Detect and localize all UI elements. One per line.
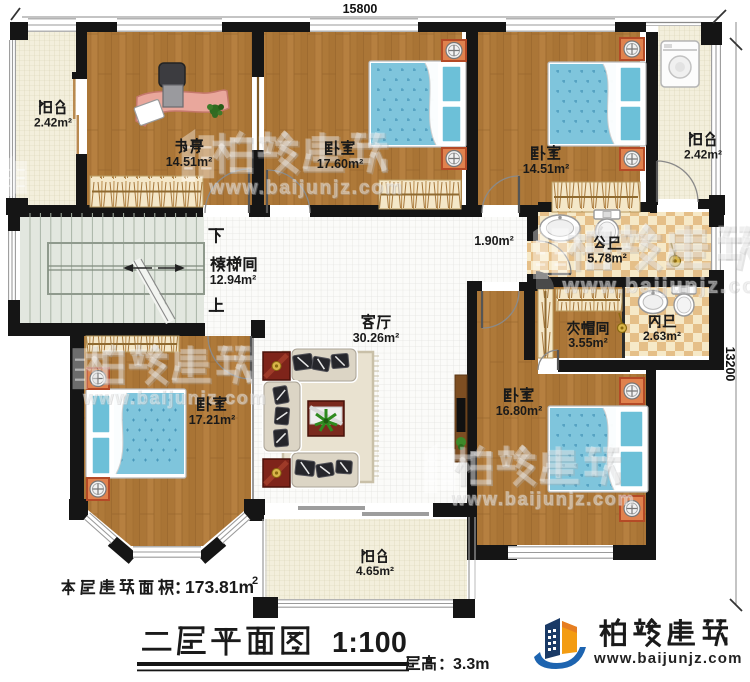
svg-text:2: 2 — [252, 575, 258, 587]
svg-text:2.42m²: 2.42m² — [684, 147, 722, 161]
svg-text:www.baijunjz.com: www.baijunjz.com — [450, 489, 635, 509]
svg-text:www.baijunjz.com: www.baijunjz.com — [82, 388, 267, 408]
svg-text:30.26m²: 30.26m² — [353, 331, 400, 345]
svg-text:173.81m: 173.81m — [185, 577, 254, 597]
svg-text:15800: 15800 — [343, 2, 378, 16]
svg-text:www.baijunjz.com: www.baijunjz.com — [593, 650, 743, 667]
svg-text:17.21m²: 17.21m² — [189, 413, 236, 427]
svg-text:14.51m²: 14.51m² — [166, 155, 213, 169]
svg-text:17.60m²: 17.60m² — [317, 157, 364, 171]
svg-text:16.80m²: 16.80m² — [496, 404, 543, 418]
svg-text:1.90m²: 1.90m² — [474, 234, 514, 248]
svg-text:2.63m²: 2.63m² — [643, 329, 681, 343]
svg-text:13200: 13200 — [723, 347, 737, 382]
svg-text:2.42m²: 2.42m² — [34, 115, 72, 129]
svg-text:www.baijunjz.com: www.baijunjz.com — [561, 274, 750, 297]
svg-text:14.51m²: 14.51m² — [523, 162, 570, 176]
svg-text:5.78m²: 5.78m² — [587, 252, 627, 266]
svg-text:3.55m²: 3.55m² — [568, 336, 608, 350]
svg-text:4.65m²: 4.65m² — [356, 564, 394, 578]
svg-text:1:100: 1:100 — [332, 627, 407, 659]
svg-text:12.94m²: 12.94m² — [210, 273, 257, 287]
svg-text:3.3m: 3.3m — [453, 656, 489, 673]
svg-text:：: ： — [438, 656, 454, 673]
svg-text:www.baijunjz.com: www.baijunjz.com — [208, 178, 403, 199]
